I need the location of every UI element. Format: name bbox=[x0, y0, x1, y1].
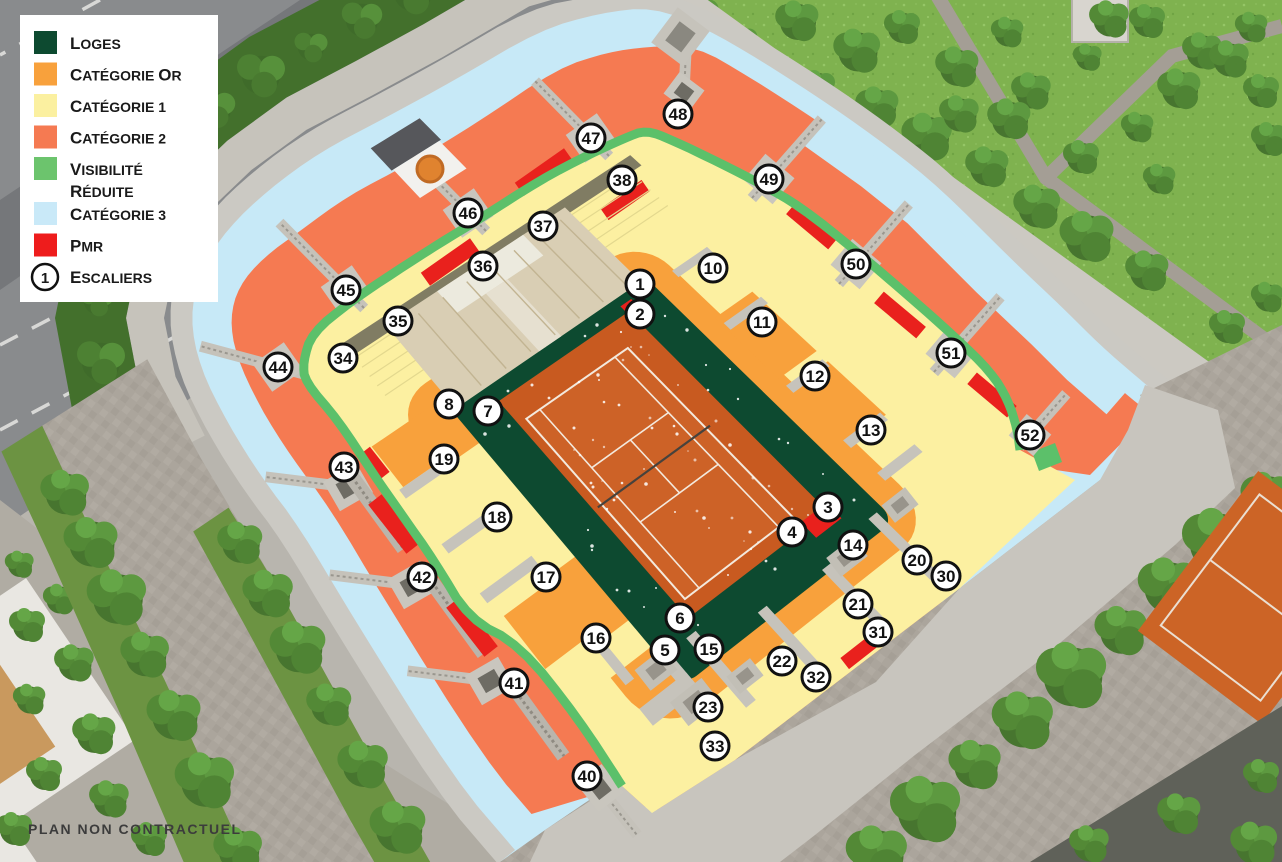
svg-text:4: 4 bbox=[787, 523, 797, 542]
svg-text:12: 12 bbox=[806, 367, 825, 386]
svg-text:43: 43 bbox=[335, 458, 354, 477]
svg-text:RÉDUITE: RÉDUITE bbox=[70, 182, 134, 201]
svg-text:40: 40 bbox=[578, 767, 597, 786]
svg-text:21: 21 bbox=[849, 595, 868, 614]
svg-text:CATÉGORIE 1: CATÉGORIE 1 bbox=[70, 97, 166, 116]
svg-text:PMR: PMR bbox=[70, 237, 103, 256]
svg-text:33: 33 bbox=[706, 737, 725, 756]
svg-text:VISIBILITÉ: VISIBILITÉ bbox=[70, 160, 143, 179]
svg-text:18: 18 bbox=[488, 508, 507, 527]
svg-text:23: 23 bbox=[699, 698, 718, 717]
svg-text:15: 15 bbox=[700, 640, 719, 659]
svg-text:38: 38 bbox=[613, 171, 632, 190]
svg-text:47: 47 bbox=[582, 129, 601, 148]
svg-text:31: 31 bbox=[869, 623, 888, 642]
svg-text:44: 44 bbox=[269, 358, 288, 377]
svg-text:3: 3 bbox=[823, 498, 832, 517]
svg-text:41: 41 bbox=[505, 674, 524, 693]
svg-text:19: 19 bbox=[435, 450, 454, 469]
svg-text:LOGES: LOGES bbox=[70, 34, 121, 53]
svg-text:20: 20 bbox=[908, 551, 927, 570]
svg-text:CATÉGORIE 2: CATÉGORIE 2 bbox=[70, 129, 166, 148]
svg-text:11: 11 bbox=[753, 313, 771, 332]
svg-text:6: 6 bbox=[675, 609, 684, 628]
svg-text:1: 1 bbox=[41, 270, 49, 287]
svg-text:17: 17 bbox=[537, 568, 556, 587]
svg-text:36: 36 bbox=[474, 257, 493, 276]
svg-text:PLAN NON CONTRACTUEL: PLAN NON CONTRACTUEL bbox=[28, 821, 242, 837]
svg-text:CATÉGORIE 3: CATÉGORIE 3 bbox=[70, 205, 166, 224]
svg-text:22: 22 bbox=[773, 652, 792, 671]
svg-text:34: 34 bbox=[334, 349, 353, 368]
svg-text:1: 1 bbox=[635, 275, 644, 294]
svg-text:30: 30 bbox=[937, 567, 956, 586]
svg-text:46: 46 bbox=[459, 204, 478, 223]
svg-text:42: 42 bbox=[413, 568, 432, 587]
svg-text:50: 50 bbox=[847, 255, 866, 274]
svg-text:10: 10 bbox=[704, 259, 723, 278]
svg-text:8: 8 bbox=[444, 395, 453, 414]
svg-text:16: 16 bbox=[587, 629, 606, 648]
svg-text:5: 5 bbox=[660, 641, 669, 660]
svg-text:14: 14 bbox=[844, 536, 863, 555]
svg-text:48: 48 bbox=[669, 105, 688, 124]
svg-text:37: 37 bbox=[534, 217, 553, 236]
svg-text:13: 13 bbox=[862, 421, 881, 440]
svg-text:CATÉGORIE OR: CATÉGORIE OR bbox=[70, 66, 182, 85]
svg-text:45: 45 bbox=[337, 281, 356, 300]
svg-text:51: 51 bbox=[942, 344, 961, 363]
svg-text:49: 49 bbox=[760, 170, 779, 189]
svg-text:7: 7 bbox=[483, 402, 492, 421]
svg-text:2: 2 bbox=[635, 305, 644, 324]
svg-text:52: 52 bbox=[1021, 426, 1040, 445]
svg-text:35: 35 bbox=[389, 312, 408, 331]
svg-text:ESCALIERS: ESCALIERS bbox=[70, 268, 152, 287]
svg-text:32: 32 bbox=[807, 668, 826, 687]
